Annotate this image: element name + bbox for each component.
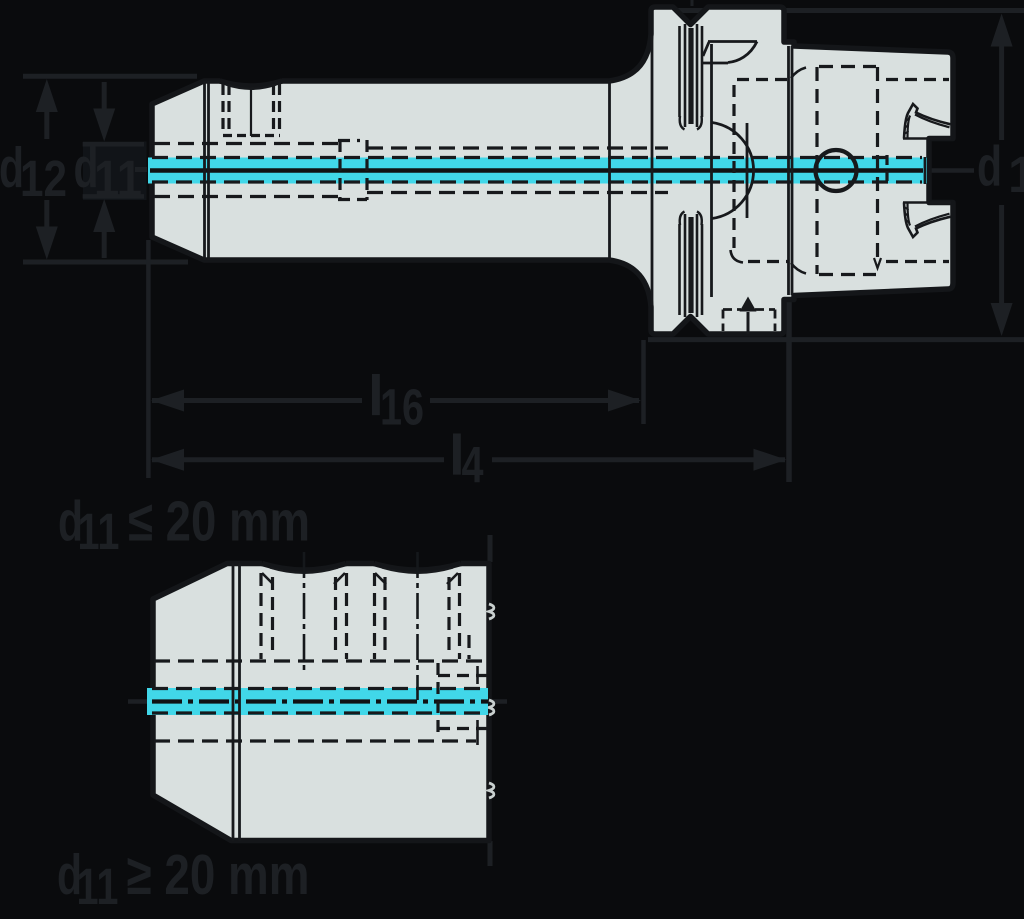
svg-text:11: 11 xyxy=(78,503,120,560)
svg-text:11: 11 xyxy=(94,150,142,207)
svg-text:4: 4 xyxy=(462,436,484,493)
svg-text:11: 11 xyxy=(77,858,119,915)
svg-text:16: 16 xyxy=(380,379,424,436)
svg-text:1: 1 xyxy=(1008,146,1024,203)
svg-text:≥ 20 mm: ≥ 20 mm xyxy=(127,843,310,907)
svg-text:≤ 20 mm: ≤ 20 mm xyxy=(128,490,310,554)
svg-text:d: d xyxy=(977,134,1002,198)
svg-text:12: 12 xyxy=(20,150,67,207)
